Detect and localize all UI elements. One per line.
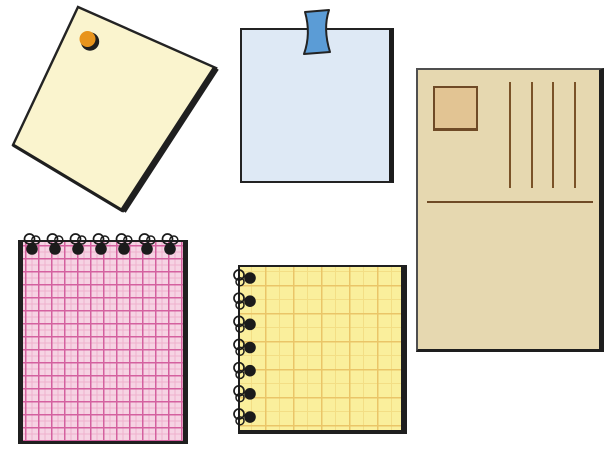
address-line xyxy=(531,82,533,188)
spiral-binding-left xyxy=(220,256,262,442)
yellow-grid-paper xyxy=(238,265,407,434)
spiral-ring xyxy=(236,370,244,378)
spiral-ring xyxy=(244,411,256,423)
tape-icon xyxy=(294,4,340,62)
spiral-ring xyxy=(118,243,130,255)
spiral-binding-top xyxy=(10,226,200,268)
spiral-ring xyxy=(236,301,244,309)
spiral-ring xyxy=(164,243,176,255)
divider-line xyxy=(427,201,593,203)
spiral-ring xyxy=(236,324,244,332)
spiral-ring xyxy=(147,236,155,244)
yellow-grid-notepad xyxy=(220,256,416,442)
pink-grid-notebook xyxy=(10,226,200,452)
postcard xyxy=(416,68,604,352)
spiral-ring xyxy=(244,342,256,354)
spiral-ring xyxy=(95,243,107,255)
illustration-canvas xyxy=(0,0,612,459)
pinned-note xyxy=(0,0,240,225)
spiral-ring xyxy=(124,236,132,244)
stamp-box xyxy=(433,86,478,131)
spiral-ring xyxy=(170,236,178,244)
spiral-ring xyxy=(244,365,256,377)
spiral-ring xyxy=(244,272,256,284)
spiral-ring xyxy=(32,236,40,244)
address-line xyxy=(574,82,576,188)
spiral-ring xyxy=(244,319,256,331)
spiral-ring xyxy=(72,243,84,255)
spiral-ring xyxy=(78,236,86,244)
spiral-ring xyxy=(244,388,256,400)
spiral-ring xyxy=(244,295,256,307)
spiral-ring xyxy=(236,278,244,286)
spiral-ring xyxy=(55,236,63,244)
pink-grid-paper xyxy=(18,240,188,444)
spiral-ring xyxy=(236,347,244,355)
address-line xyxy=(552,82,554,188)
address-line xyxy=(509,82,511,188)
spiral-ring xyxy=(49,243,61,255)
spiral-ring xyxy=(236,394,244,402)
spiral-ring xyxy=(101,236,109,244)
spiral-ring xyxy=(26,243,38,255)
spiral-ring xyxy=(236,417,244,425)
spiral-ring xyxy=(141,243,153,255)
